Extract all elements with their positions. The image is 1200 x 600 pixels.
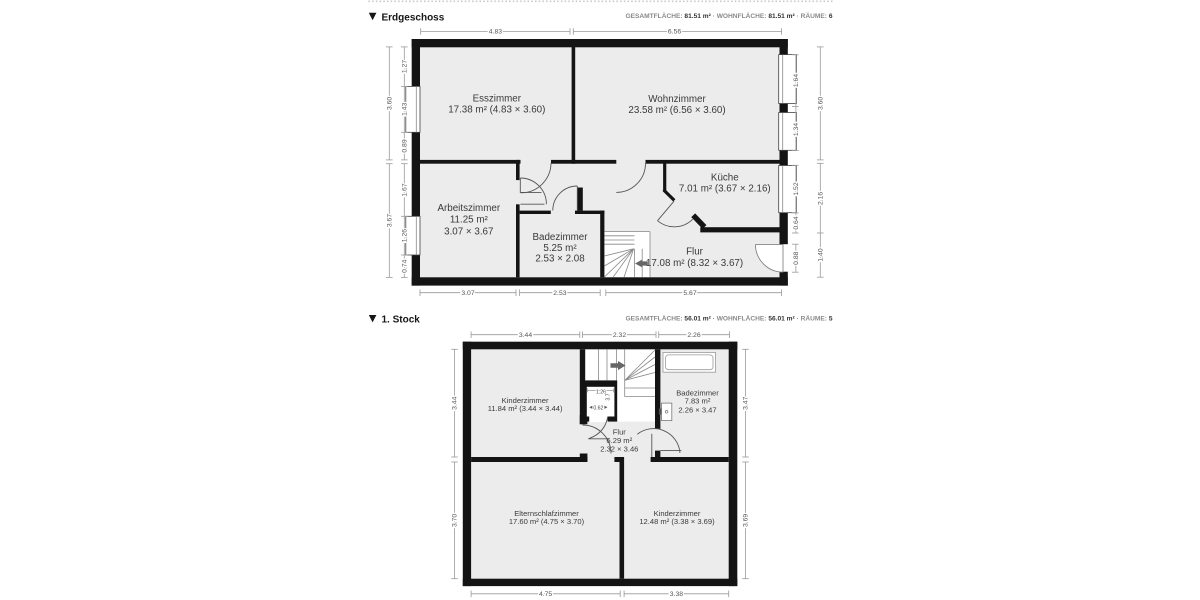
svg-text:Badezimmer: Badezimmer [533, 232, 589, 243]
svg-text:3.44: 3.44 [519, 332, 532, 339]
svg-text:7.01 m² (3.67 × 2.16): 7.01 m² (3.67 × 2.16) [679, 183, 771, 194]
svg-text:Erdgeschoss: Erdgeschoss [382, 12, 445, 23]
svg-text:0.74: 0.74 [401, 259, 408, 272]
svg-text:17.38 m² (4.83 × 3.60): 17.38 m² (4.83 × 3.60) [448, 105, 545, 116]
svg-text:1.52: 1.52 [793, 182, 800, 195]
svg-text:1.64: 1.64 [793, 74, 800, 87]
svg-text:3.7: 3.7 [605, 393, 611, 400]
svg-text:23.58 m² (6.56 × 3.60): 23.58 m² (6.56 × 3.60) [628, 105, 725, 116]
svg-text:0.64: 0.64 [793, 216, 800, 229]
svg-text:Flur: Flur [613, 427, 627, 436]
svg-text:1.67: 1.67 [402, 183, 409, 196]
svg-text:0.62: 0.62 [593, 405, 603, 411]
svg-text:11.25 m²: 11.25 m² [450, 215, 489, 226]
svg-text:3.07 × 3.67: 3.07 × 3.67 [444, 226, 493, 237]
svg-text:2.26 × 3.47: 2.26 × 3.47 [678, 405, 716, 414]
svg-text:1.40: 1.40 [818, 248, 825, 261]
svg-text:5.25 m²: 5.25 m² [543, 243, 577, 254]
svg-text:2.53 × 2.08: 2.53 × 2.08 [535, 254, 585, 265]
svg-text:GESAMTFLÄCHE: 56.01 m² · WOHNF: GESAMTFLÄCHE: 56.01 m² · WOHNFLÄCHE: 56.… [625, 314, 832, 322]
svg-text:2.32: 2.32 [613, 332, 626, 339]
svg-text:2.32 × 3.46: 2.32 × 3.46 [600, 445, 638, 454]
svg-text:3.07: 3.07 [461, 290, 474, 297]
svg-text:7.83 m²: 7.83 m² [685, 397, 711, 406]
svg-text:Arbeitszimmer: Arbeitszimmer [437, 203, 500, 214]
svg-text:0.88: 0.88 [793, 251, 800, 264]
svg-text:2.53: 2.53 [553, 290, 566, 297]
svg-text:1.43: 1.43 [402, 102, 409, 115]
svg-text:0.89: 0.89 [402, 139, 409, 152]
svg-text:Flur: Flur [686, 247, 704, 258]
svg-text:3.70: 3.70 [452, 514, 459, 527]
svg-text:3.60: 3.60 [818, 97, 825, 110]
svg-text:1.27: 1.27 [402, 60, 409, 73]
svg-text:3.60: 3.60 [387, 97, 394, 110]
svg-text:2.26: 2.26 [687, 332, 700, 339]
svg-text:Esszimmer: Esszimmer [473, 94, 522, 105]
svg-text:1.26: 1.26 [402, 229, 409, 242]
svg-text:17.60 m² (4.75 × 3.70): 17.60 m² (4.75 × 3.70) [509, 517, 585, 526]
svg-text:12.48 m² (3.38 × 3.69): 12.48 m² (3.38 × 3.69) [639, 517, 715, 526]
svg-text:GESAMTFLÄCHE: 81.51 m² · WOHNF: GESAMTFLÄCHE: 81.51 m² · WOHNFLÄCHE: 81.… [625, 12, 832, 20]
svg-text:4.83: 4.83 [489, 29, 502, 36]
svg-text:4.75: 4.75 [539, 591, 552, 598]
svg-text:3.44: 3.44 [452, 396, 459, 409]
svg-text:1.34: 1.34 [793, 123, 800, 136]
svg-text:6.56: 6.56 [668, 29, 681, 36]
svg-text:17.08 m² (8.32 × 3.67): 17.08 m² (8.32 × 3.67) [646, 258, 743, 269]
svg-text:2.16: 2.16 [818, 192, 825, 205]
svg-text:Küche: Küche [711, 172, 739, 183]
svg-text:5.67: 5.67 [683, 290, 696, 297]
svg-text:3.67: 3.67 [387, 214, 394, 227]
svg-text:3.69: 3.69 [743, 514, 750, 527]
svg-text:Wohnzimmer: Wohnzimmer [648, 94, 706, 105]
svg-text:1. Stock: 1. Stock [382, 315, 421, 326]
svg-text:11.84 m² (3.44 × 3.44): 11.84 m² (3.44 × 3.44) [488, 404, 563, 413]
svg-text:3.38: 3.38 [670, 591, 683, 598]
svg-text:3.47: 3.47 [743, 396, 750, 409]
